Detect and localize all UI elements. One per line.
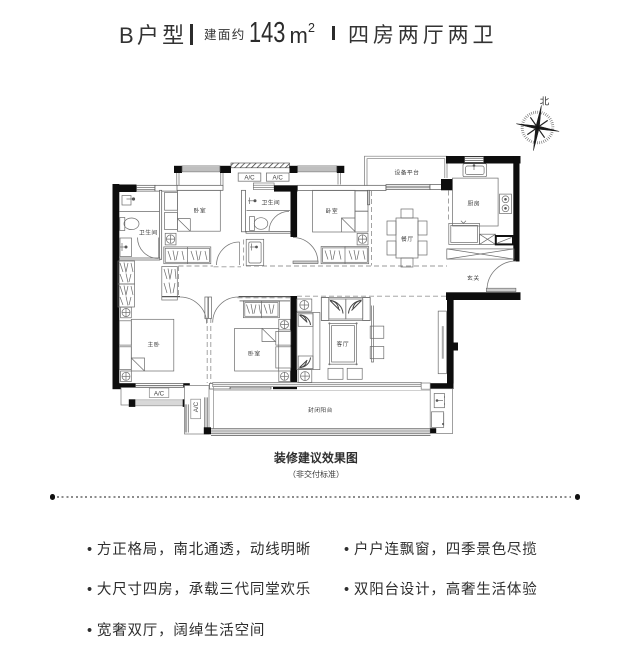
svg-text:餐厅: 餐厅 xyxy=(401,235,414,243)
svg-text:封闭阳台: 封闭阳台 xyxy=(308,406,333,414)
svg-text:卧室: 卧室 xyxy=(194,207,207,215)
svg-text:卧室: 卧室 xyxy=(248,350,261,358)
svg-text:A/C: A/C xyxy=(154,390,165,397)
svg-text:卫生间: 卫生间 xyxy=(139,229,158,237)
svg-text:客厅: 客厅 xyxy=(337,340,350,348)
svg-text:玄关: 玄关 xyxy=(467,274,480,282)
svg-text:厨房: 厨房 xyxy=(468,200,481,208)
svg-text:A/C: A/C xyxy=(273,175,284,182)
svg-text:卫生间: 卫生间 xyxy=(262,199,281,207)
svg-text:A/C: A/C xyxy=(244,175,255,182)
svg-text:A/C: A/C xyxy=(193,401,200,412)
svg-text:主卧: 主卧 xyxy=(148,341,161,349)
svg-text:设备平台: 设备平台 xyxy=(395,169,420,177)
svg-text:卧室: 卧室 xyxy=(326,207,339,215)
